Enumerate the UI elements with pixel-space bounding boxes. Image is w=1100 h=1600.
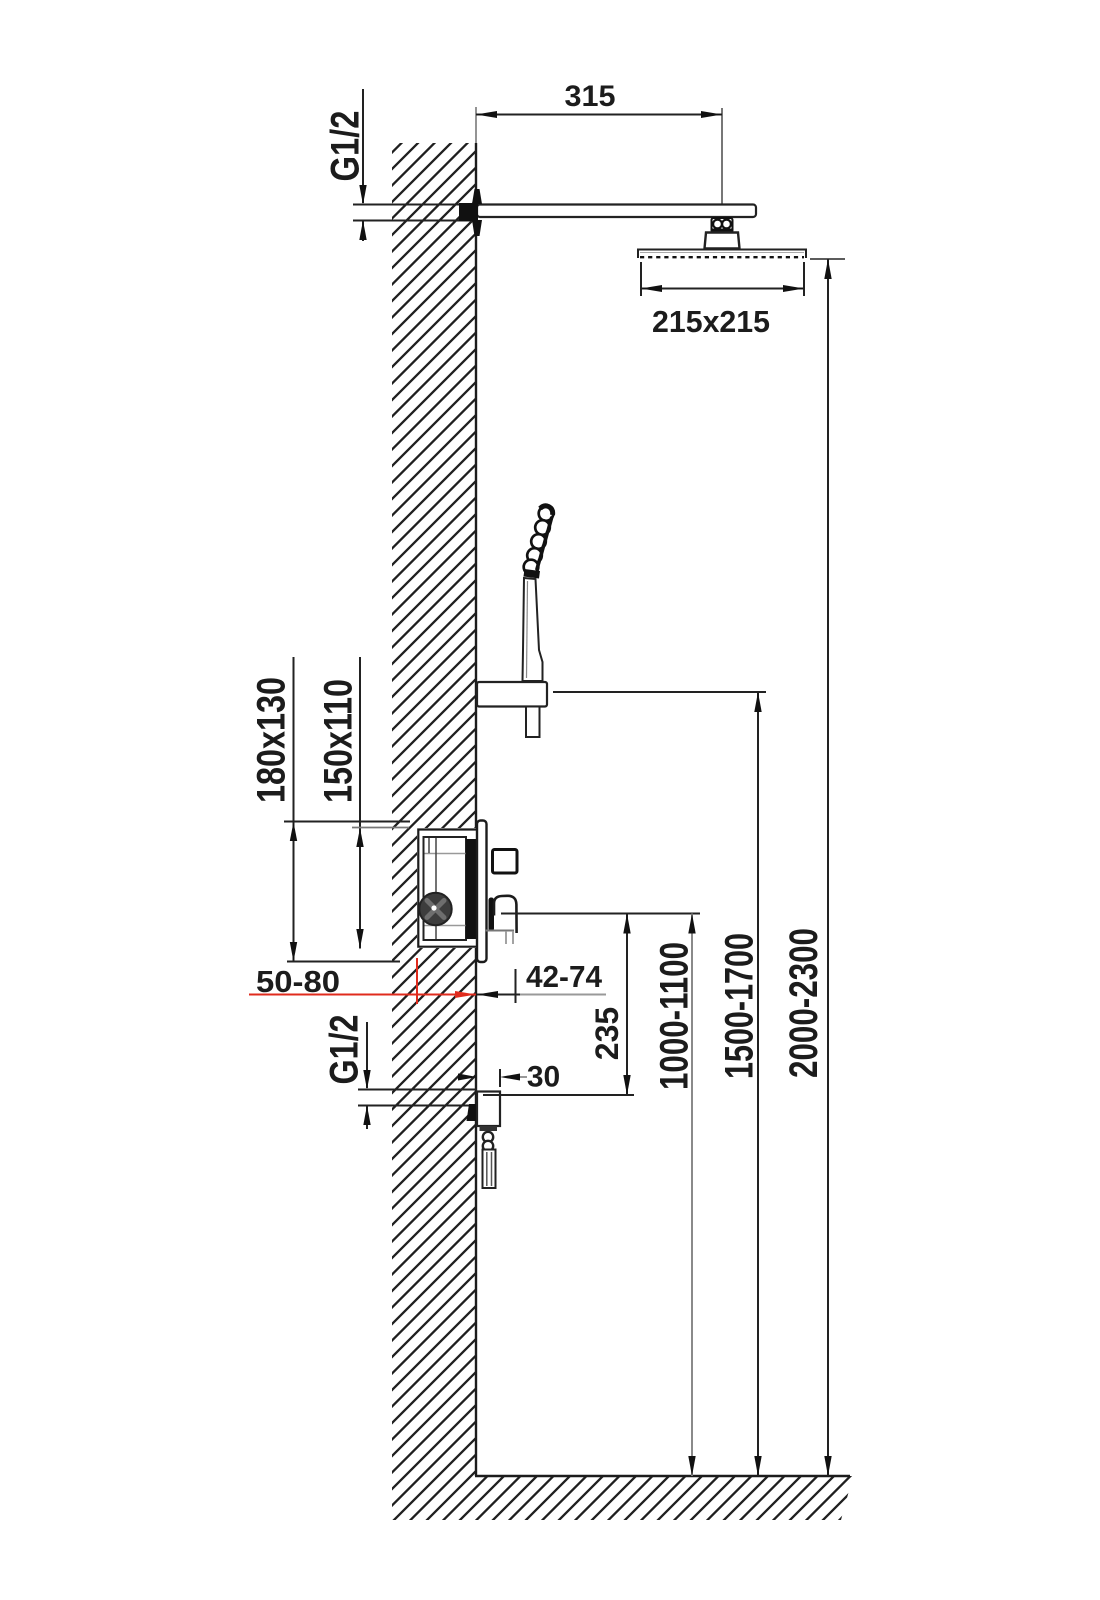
svg-text:50-80: 50-80 <box>256 964 340 999</box>
svg-text:150x110: 150x110 <box>317 679 361 803</box>
svg-text:G1/2: G1/2 <box>323 1015 367 1085</box>
svg-text:315: 315 <box>565 80 616 113</box>
svg-text:235: 235 <box>589 1007 625 1060</box>
svg-text:2000-2300: 2000-2300 <box>782 928 826 1078</box>
svg-text:180x130: 180x130 <box>250 677 294 803</box>
svg-text:30: 30 <box>527 1061 560 1094</box>
svg-text:1500-1700: 1500-1700 <box>718 933 762 1079</box>
svg-text:42-74: 42-74 <box>526 959 603 994</box>
svg-text:215x215: 215x215 <box>652 304 770 339</box>
svg-text:G1/2: G1/2 <box>324 111 368 182</box>
svg-text:1000-1100: 1000-1100 <box>653 942 697 1090</box>
